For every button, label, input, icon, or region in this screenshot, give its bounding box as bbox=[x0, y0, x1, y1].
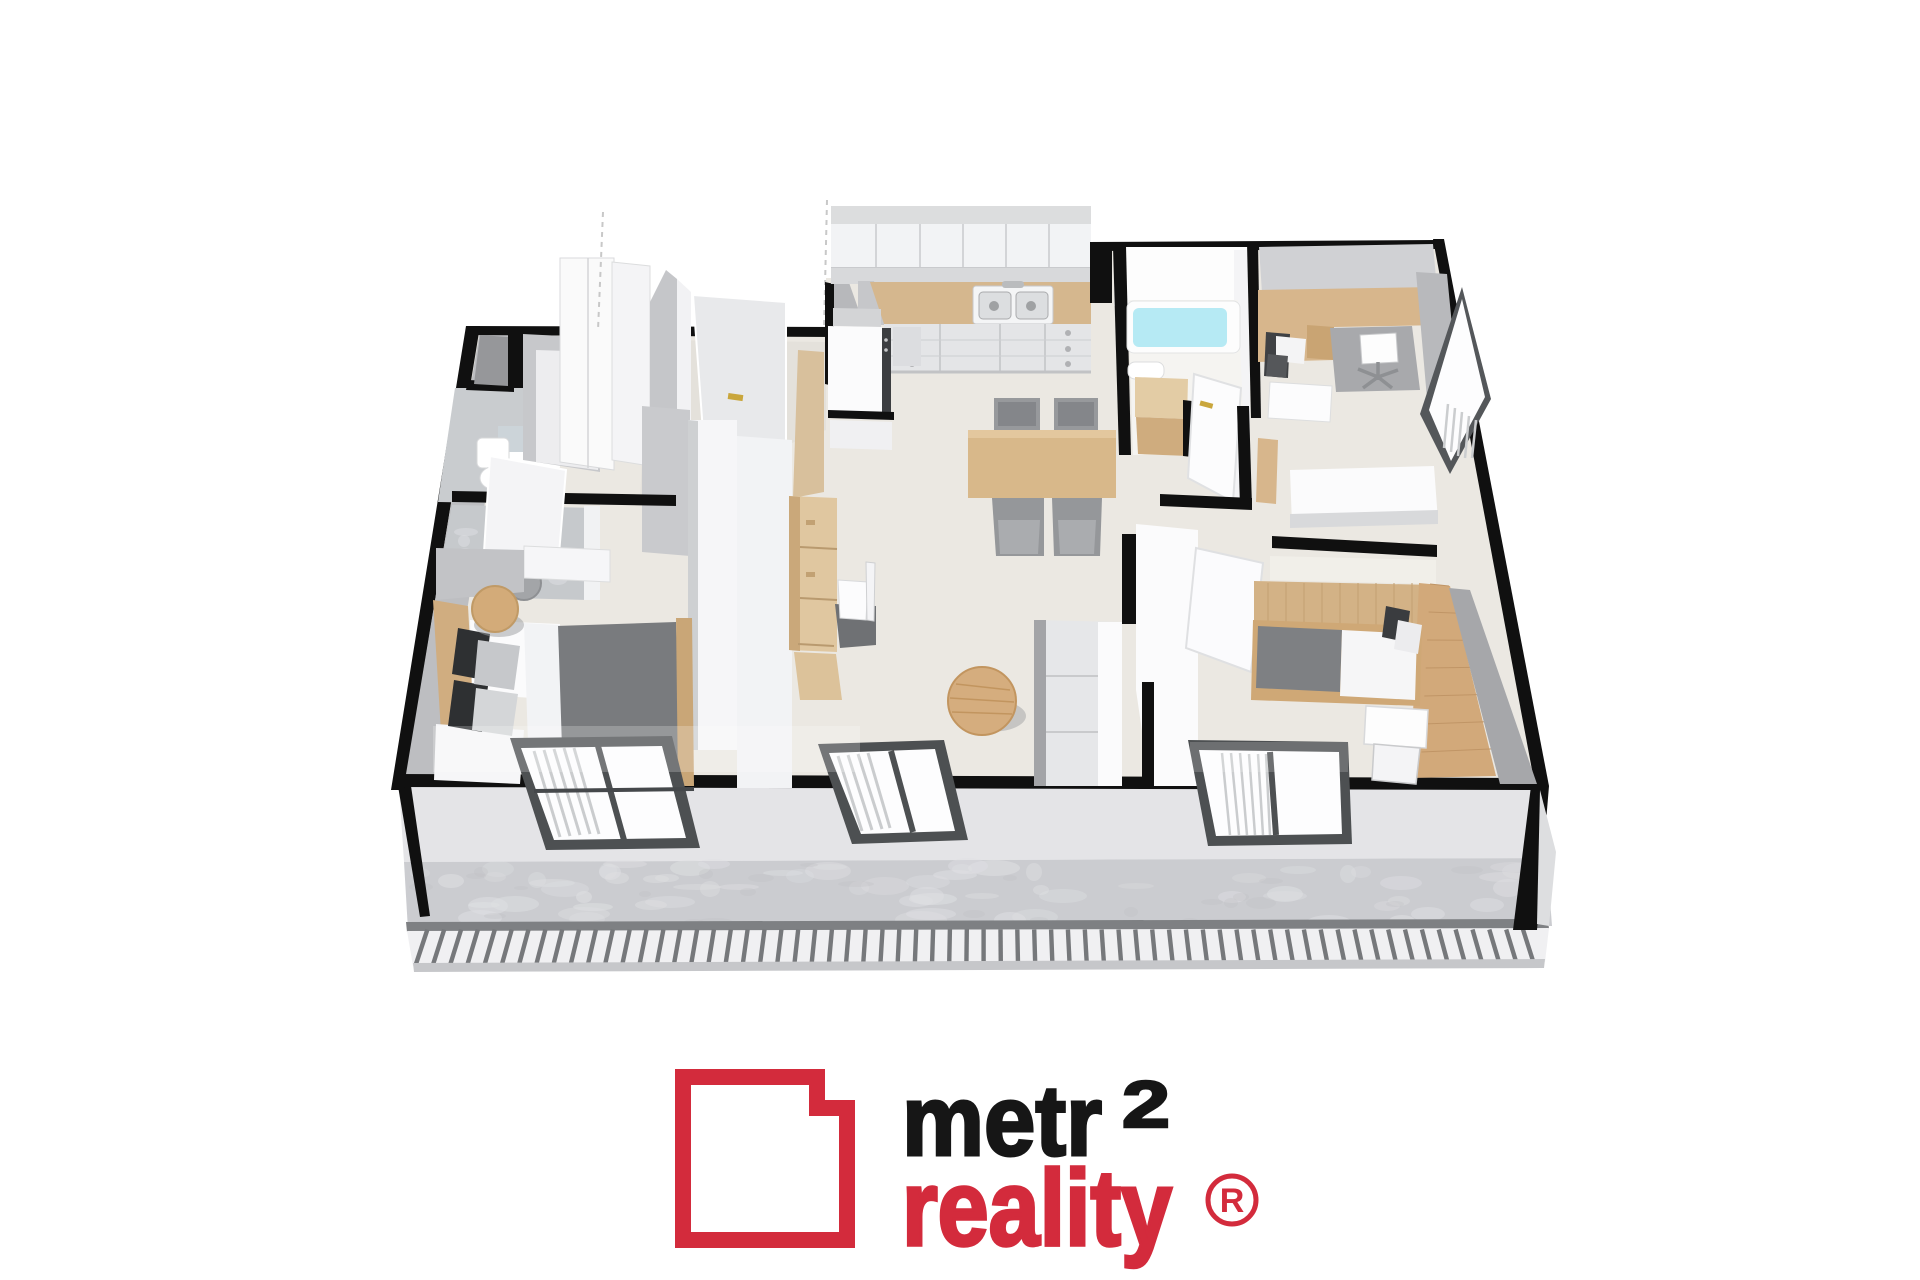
svg-text:reality: reality bbox=[902, 1147, 1172, 1268]
svg-text:R: R bbox=[1220, 1182, 1245, 1220]
svg-text:2: 2 bbox=[1122, 1067, 1170, 1141]
